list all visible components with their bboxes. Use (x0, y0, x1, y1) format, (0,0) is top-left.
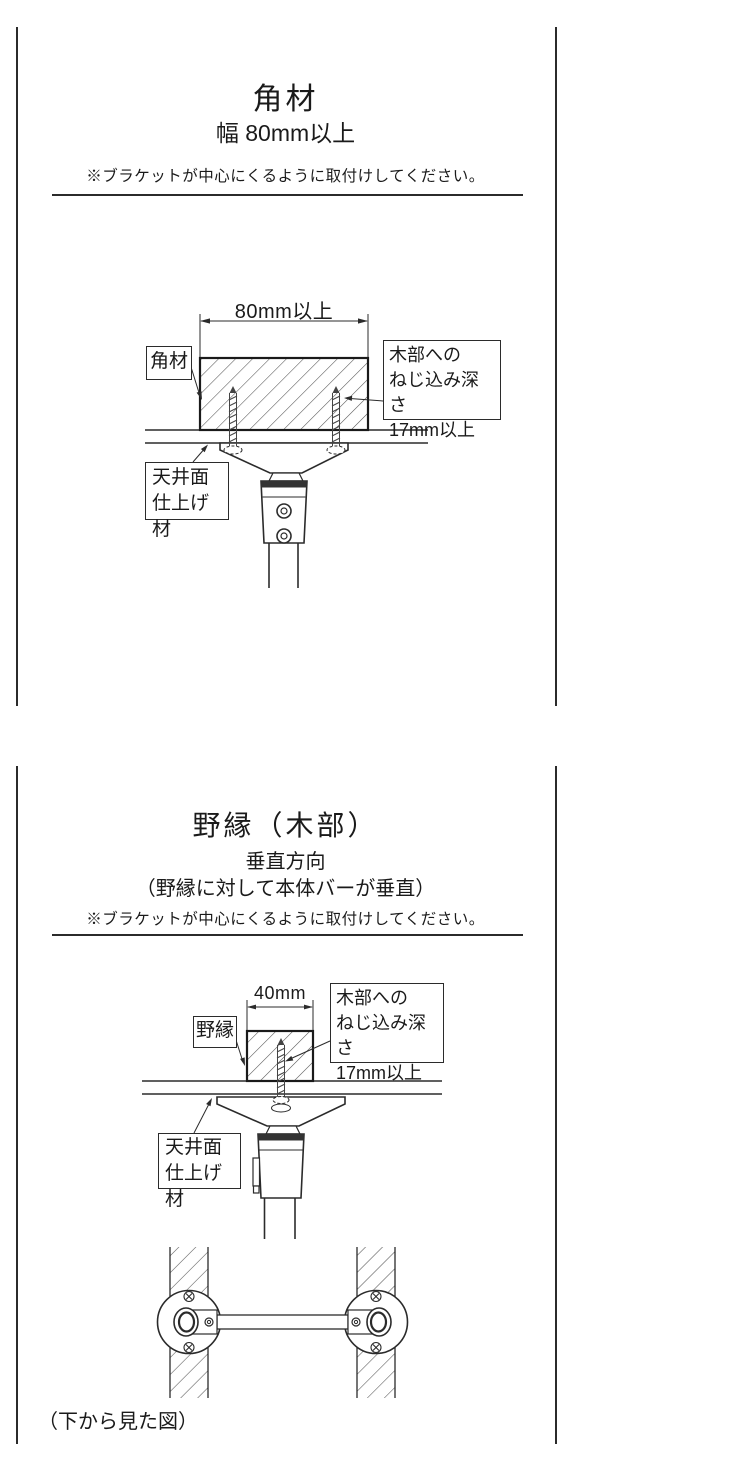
dimension-label-40mm: 40mm (247, 983, 313, 1004)
ceiling-label-box: 天井面 仕上げ材 (145, 462, 229, 520)
panel1-title: 角材 (16, 74, 555, 118)
ceiling-lines (145, 430, 428, 443)
ceiling-label-line1: 天井面 (165, 1135, 234, 1161)
screw-depth-note-box: 木部への ねじ込み深さ 17mm以上 (330, 983, 444, 1063)
screw-note-line1: 木部への (389, 343, 495, 368)
part-label-box: 角材 (146, 346, 192, 380)
instruction-page: 角材 幅 80mm以上 ※ブラケットが中心にくるように取付けしてください。 (0, 0, 750, 1466)
panel2-note: ※ブラケットが中心にくるように取付けしてください。 (16, 907, 555, 929)
part-label-text: 角材 (150, 351, 188, 372)
ceiling-label-line2: 仕上げ材 (165, 1161, 234, 1213)
panel1-divider (52, 194, 523, 196)
wood-block (200, 358, 368, 430)
body-bar (217, 1315, 348, 1329)
bottom-view-caption: （下から見た図） (38, 1405, 198, 1434)
dimension-label-80mm: 80mm以上 (199, 295, 369, 324)
part-label-box: 野縁 (193, 1016, 237, 1048)
screw-depth-note-box: 木部への ねじ込み深さ 17mm以上 (383, 340, 501, 420)
panel2-title: 野縁（木部） (16, 804, 555, 844)
set-screw-bottom (277, 529, 291, 543)
dimension-40mm (247, 1000, 313, 1031)
part-label-text: 野縁 (196, 1020, 234, 1041)
panel1-note: ※ブラケットが中心にくるように取付けしてください。 (16, 164, 555, 186)
panel2-divider (52, 934, 523, 936)
panel2-orientation-note: （野縁に対して本体バーが垂直） (16, 872, 555, 901)
bottom-view-diagram (130, 1240, 470, 1405)
bracket-body (253, 1126, 304, 1198)
hanging-pipe (265, 1198, 296, 1239)
hanging-pipe (269, 543, 298, 588)
screw-note-line2: ねじ込み深さ (389, 368, 495, 418)
panel2-subtitle: 垂直方向 (16, 845, 555, 874)
panel1-subtitle: 幅 80mm以上 (16, 114, 555, 148)
ceiling-label-box: 天井面 仕上げ材 (158, 1133, 241, 1189)
screw-note-line2: ねじ込み深さ (336, 1011, 438, 1061)
screw-note-line3: 17mm以上 (389, 418, 495, 443)
bar-socket-right (348, 1308, 391, 1336)
bar-socket-left (174, 1308, 217, 1336)
screw-note-line1: 木部への (336, 986, 438, 1011)
ceiling-label-line2: 仕上げ材 (152, 491, 222, 543)
screw-note-line3: 17mm以上 (336, 1061, 438, 1086)
release-latch (253, 1158, 260, 1186)
bracket-body (261, 473, 307, 543)
ceiling-label-line1: 天井面 (152, 465, 222, 491)
set-screw-top (277, 504, 291, 518)
